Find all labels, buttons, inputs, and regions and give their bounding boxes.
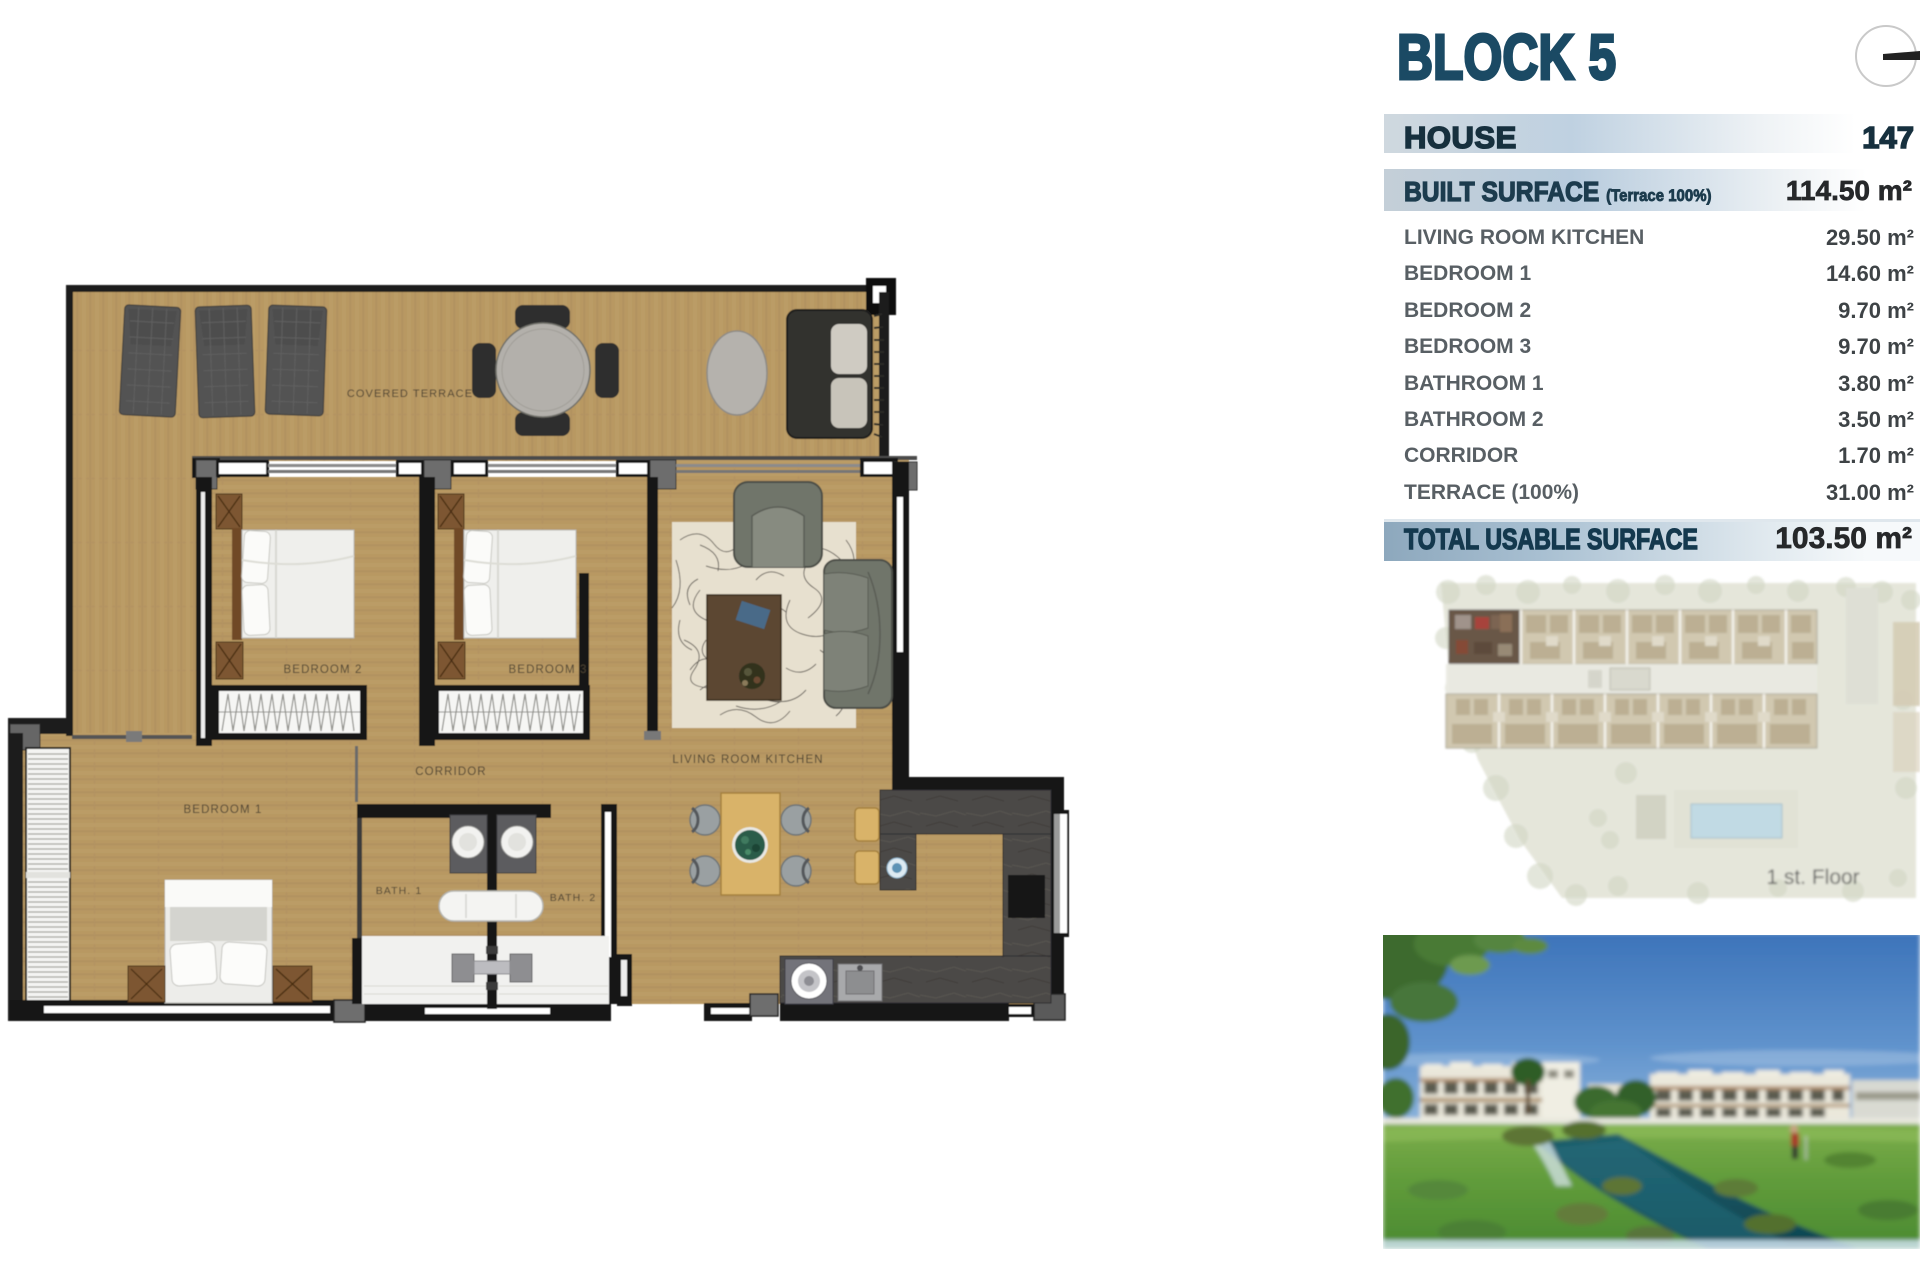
svg-text:BATH. 1: BATH. 1	[376, 885, 423, 897]
svg-text:BEDROOM 3: BEDROOM 3	[509, 664, 588, 676]
svg-text:BEDROOM 1: BEDROOM 1	[184, 804, 263, 816]
svg-text:CORRIDOR: CORRIDOR	[415, 766, 486, 778]
svg-text:COVERED TERRACE: COVERED TERRACE	[347, 388, 473, 400]
svg-text:BEDROOM 2: BEDROOM 2	[284, 664, 363, 676]
svg-text:BATH. 2: BATH. 2	[550, 892, 597, 904]
svg-text:1 st. Floor: 1 st. Floor	[1766, 866, 1859, 889]
svg-text:LIVING ROOM KITCHEN: LIVING ROOM KITCHEN	[672, 754, 823, 766]
